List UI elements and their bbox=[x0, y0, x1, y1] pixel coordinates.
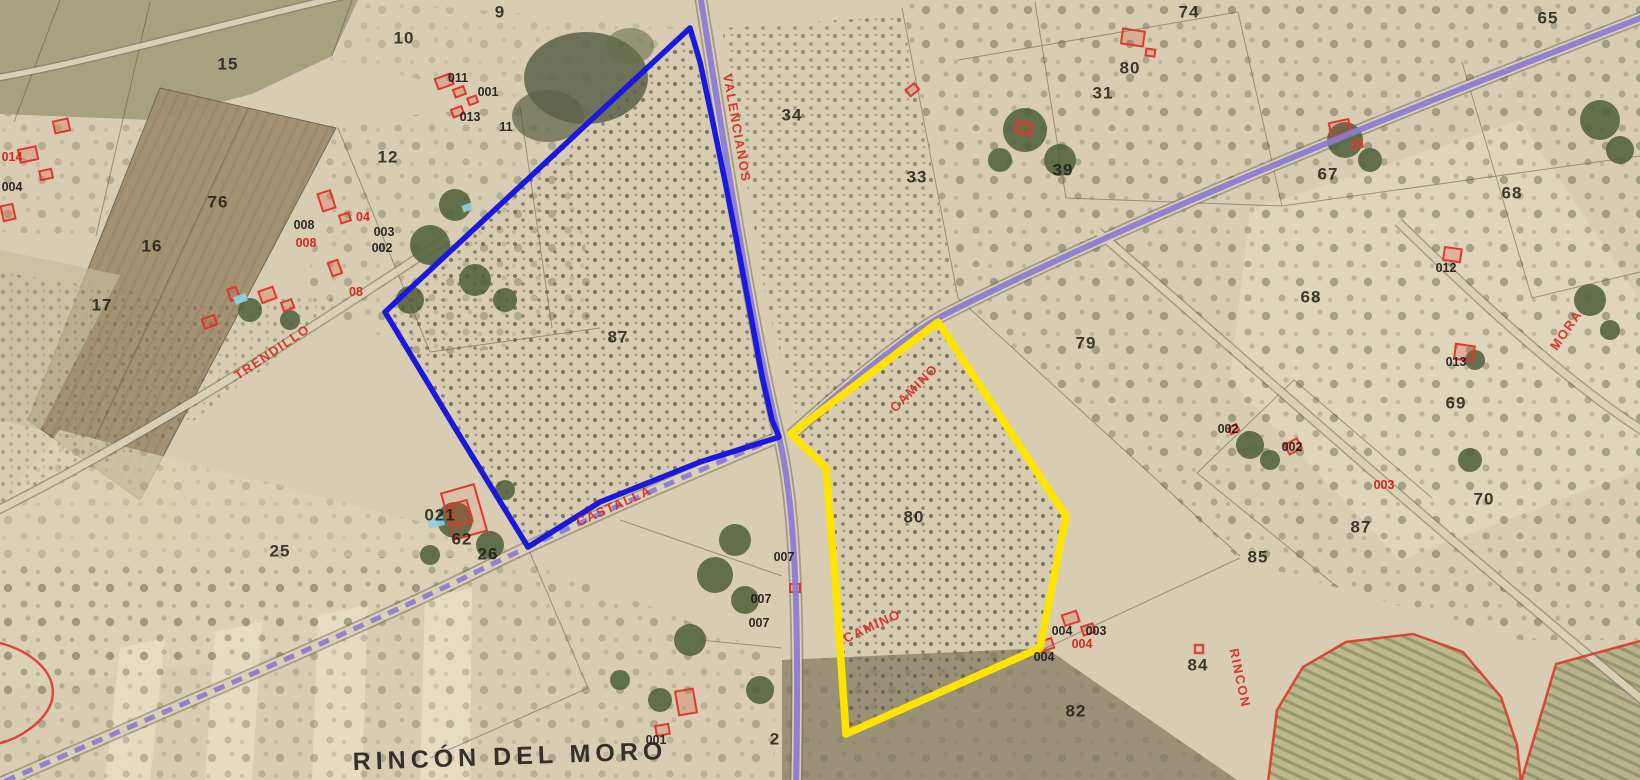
map-canvas[interactable]: VALENCIANOSCAMINOCAMINOCASTALLATRENDILLO… bbox=[0, 0, 1640, 780]
map-image bbox=[0, 0, 1640, 780]
